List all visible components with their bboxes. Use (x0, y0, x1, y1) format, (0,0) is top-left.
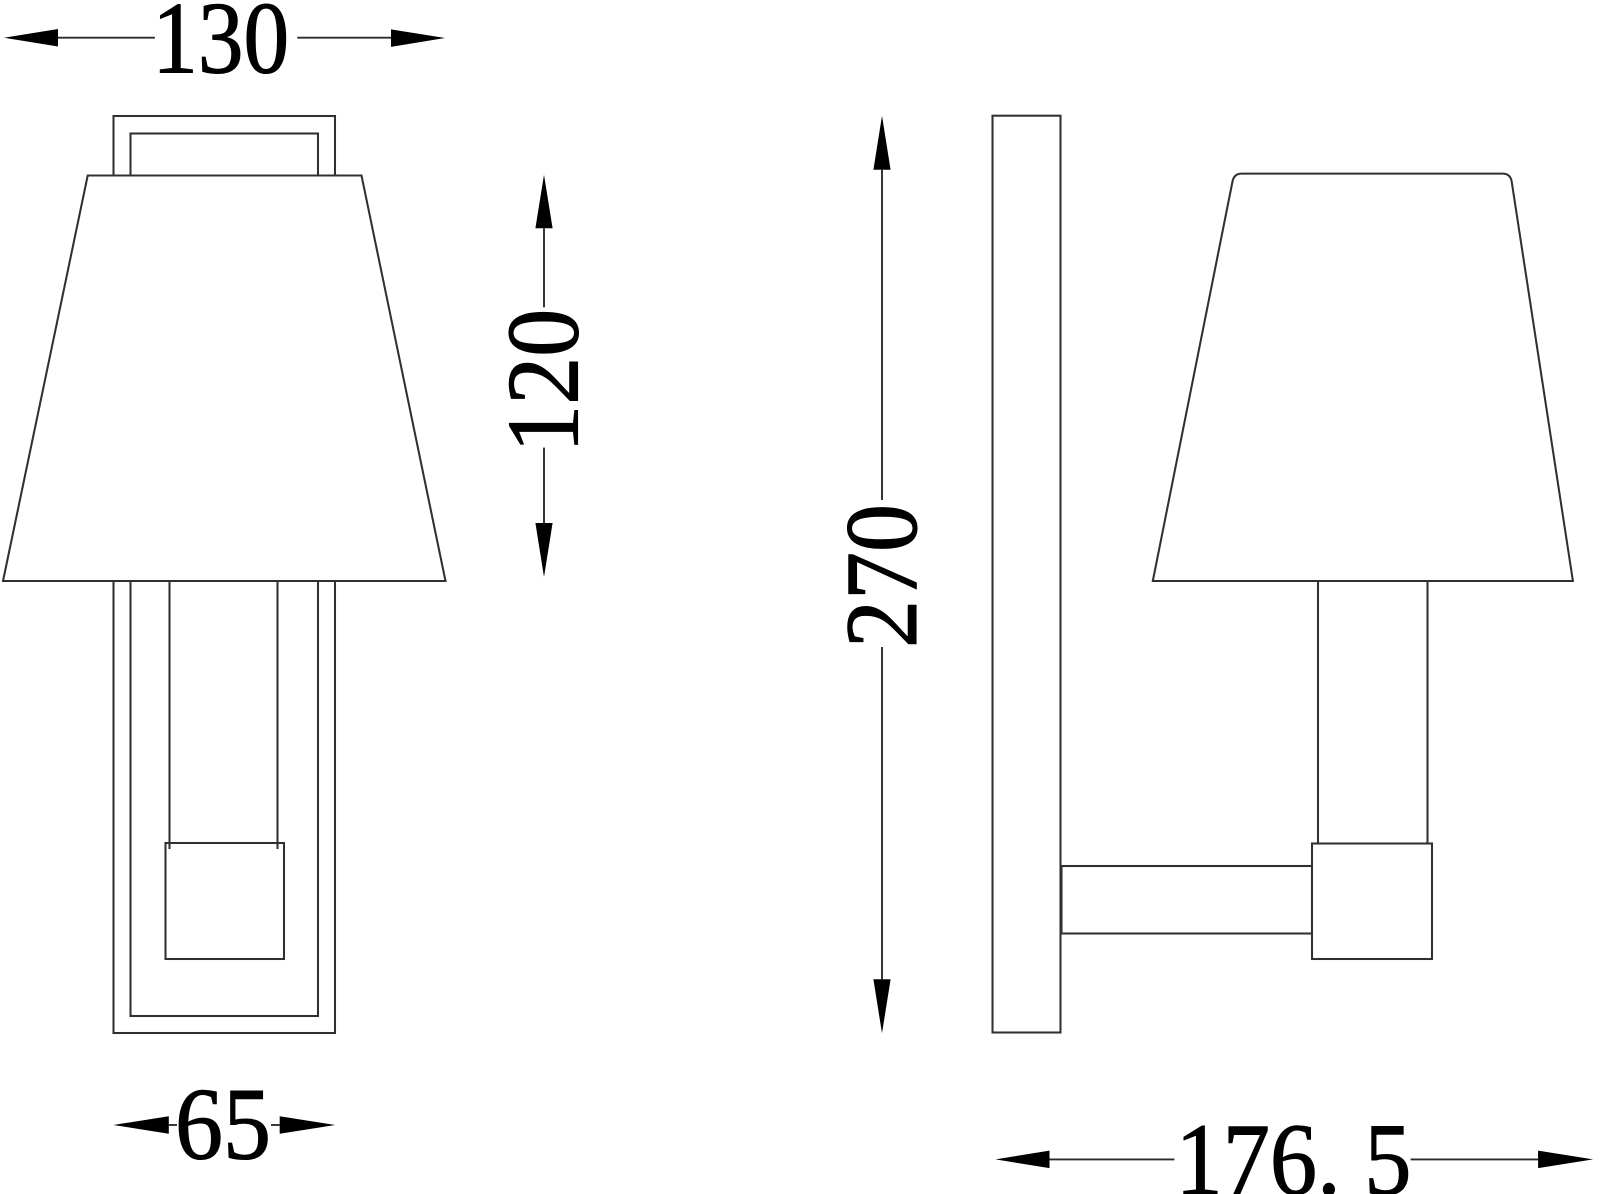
svg-text:65: 65 (175, 1067, 271, 1181)
svg-text:270: 270 (825, 504, 939, 648)
svg-text:176. 5: 176. 5 (1176, 1103, 1412, 1194)
svg-text:130: 130 (152, 0, 289, 96)
svg-text:120: 120 (486, 309, 600, 453)
